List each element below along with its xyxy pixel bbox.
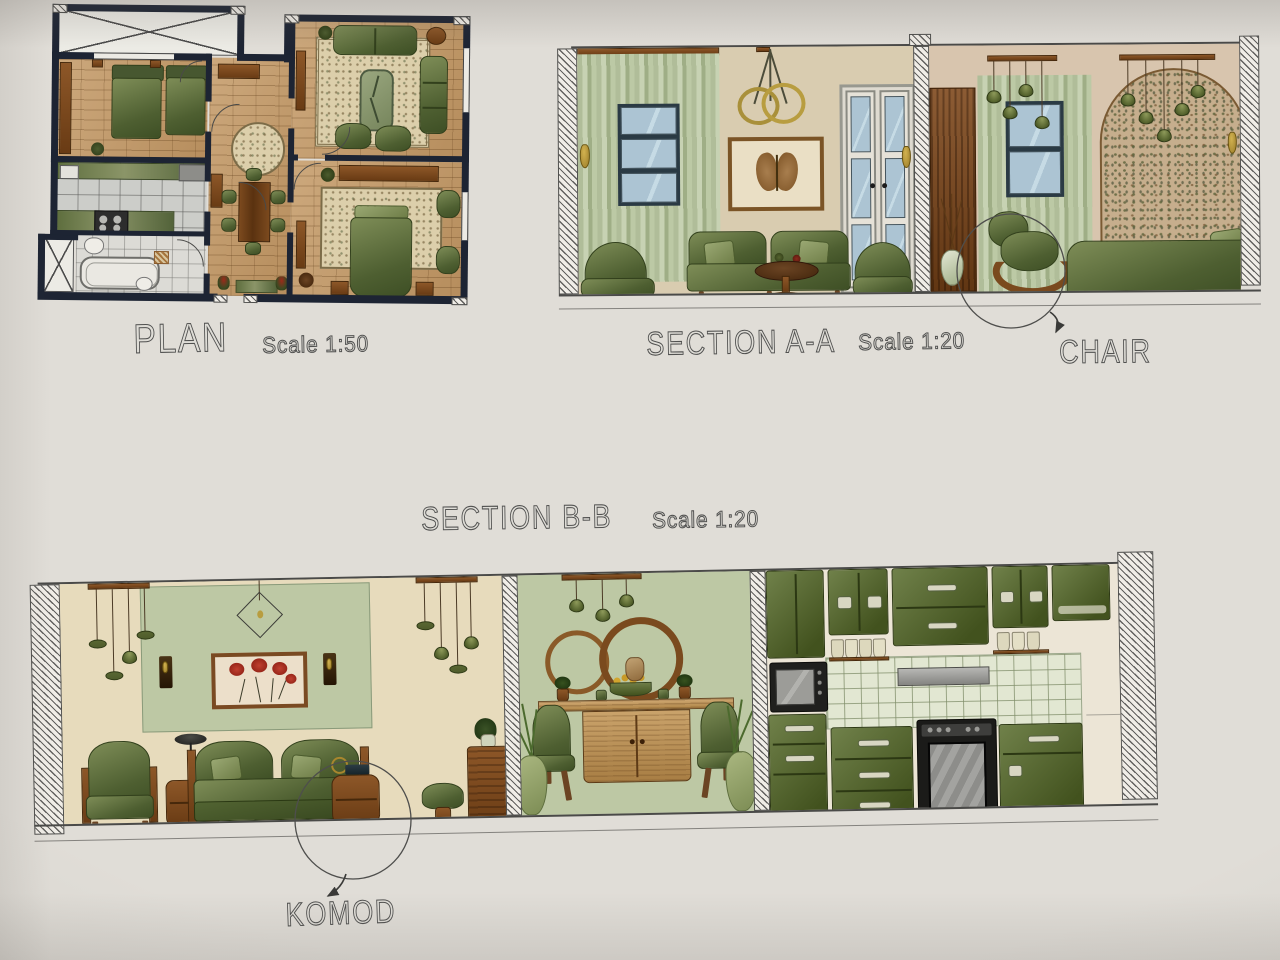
pendant-bar [1119, 54, 1215, 61]
lower-cabinet [768, 714, 828, 811]
plan-window [461, 192, 469, 240]
plan-towel [154, 251, 169, 264]
plan-wall [287, 232, 294, 296]
plan-side-table [296, 220, 307, 268]
pendant-light [1175, 103, 1190, 116]
wall-sconce [1228, 132, 1237, 154]
lower-cabinet [831, 726, 915, 811]
pendant-light [1018, 84, 1033, 97]
plan-wall [288, 154, 298, 160]
plan-sideboard [339, 165, 439, 182]
pendant-light [595, 609, 610, 622]
plan-wall [203, 274, 209, 300]
plan-flower-pot [218, 276, 230, 290]
floor-plan-drawing [31, 4, 470, 307]
plan-wall-cap [451, 297, 467, 305]
plan-window [462, 48, 470, 112]
upper-cabinet [891, 566, 988, 646]
plan-hall-cabinet [210, 174, 222, 208]
armchair [81, 740, 163, 824]
upper-cabinet [991, 565, 1048, 628]
pendant-light [619, 594, 634, 607]
komod-callout-arrow [328, 874, 346, 896]
section-bb-wall-right [1117, 551, 1158, 800]
plan-console [218, 64, 260, 79]
plan-window [94, 52, 174, 60]
plan-dining-chair [245, 242, 261, 255]
vase-with-branches [932, 192, 967, 290]
plan-wall-cap [453, 16, 470, 25]
pendant-light [1139, 111, 1154, 124]
flower-artwork [211, 652, 308, 710]
range-hood [897, 666, 989, 686]
pendant-light [464, 636, 479, 649]
plan-wall-cap [243, 295, 257, 303]
rocking-chair [986, 211, 1079, 292]
plan-wall-cap [284, 14, 299, 23]
section-aa-livingroom [577, 46, 915, 294]
plan-wall [237, 54, 291, 62]
wall-sconce [902, 146, 911, 168]
plan-dining-chair [246, 168, 262, 181]
plan-plant [321, 168, 335, 182]
plant-pot [675, 674, 693, 700]
plan-balcony [58, 8, 240, 56]
wall-sconce [580, 144, 590, 168]
plan-scale: Scale 1:50 [262, 330, 369, 359]
armchair [580, 242, 658, 295]
section-aa-drawing [557, 32, 1261, 313]
section-bb-drawing [29, 549, 1158, 857]
bedside-chest [331, 750, 383, 824]
coffee-table [755, 261, 817, 295]
plan-doormat [236, 280, 278, 293]
upper-cabinet [827, 568, 888, 635]
section-aa-wall-left [557, 48, 579, 294]
door-handle [870, 183, 875, 188]
butterfly-artwork [728, 137, 825, 212]
section-bb-scale: Scale 1:20 [652, 506, 759, 534]
plan-plant [91, 142, 104, 155]
tall-cabinet [466, 718, 506, 825]
diamond-pendant-light [230, 580, 291, 645]
plan-side-table [426, 27, 446, 45]
plan-console [295, 50, 306, 110]
plan-wall [288, 128, 295, 202]
plan-wall [205, 132, 212, 182]
upper-cabinet [1051, 564, 1110, 621]
upper-cabinet [765, 570, 825, 659]
plan-dresser [59, 62, 72, 154]
armchair [852, 242, 914, 294]
plan-pouf [299, 273, 314, 288]
section-aa-wall-right [1239, 36, 1261, 286]
plan-dining-chair [270, 218, 285, 232]
komod-callout-label: KOMOD [285, 892, 397, 934]
plan-wall [289, 14, 296, 98]
plan-bed-1 [111, 65, 162, 140]
chair-callout-arrow [1050, 312, 1058, 332]
floor-plant [518, 703, 549, 815]
pendant-light [449, 664, 467, 673]
plan-wall [37, 292, 217, 302]
window [618, 104, 681, 206]
pendant-light [986, 90, 1001, 103]
section-aa-scale: Scale 1:20 [858, 327, 965, 356]
plan-title: PLAN [133, 314, 228, 363]
section-aa-bedroom [929, 44, 1241, 292]
pendant-light [105, 671, 123, 680]
plan-armchair [436, 246, 460, 274]
open-shelf-jars [829, 636, 889, 661]
floor-plant [722, 699, 754, 812]
plan-wall-cap [213, 295, 227, 303]
pendant-light [122, 651, 137, 664]
plan-coffee-table [359, 69, 394, 131]
section-bb-title: SECTION B-B [421, 497, 612, 538]
door-handle [882, 183, 887, 188]
presentation-board: { "board": { "drawings": [ {"id": "plan"… [0, 0, 1280, 960]
jug [625, 657, 644, 681]
section-bb-wall-left [30, 584, 65, 835]
plan-plant [318, 26, 332, 40]
plan-wall [243, 294, 467, 304]
microwave [769, 662, 828, 713]
pendant-light [416, 621, 434, 630]
wall-niche-lamp [159, 656, 173, 688]
section-aa-title: SECTION A-A [646, 322, 836, 363]
table-cabinet [582, 709, 691, 783]
plan-wall-cap [52, 4, 67, 13]
plan-loveseat [333, 25, 417, 56]
open-shelf-jars [993, 629, 1049, 654]
section-aa-wall-cap [909, 34, 931, 46]
plan-wall [204, 212, 210, 246]
plan-fridge [179, 164, 207, 181]
plan-bed-large [350, 205, 413, 298]
plan-nightlamp [150, 60, 161, 68]
plan-dining-chair [221, 218, 236, 232]
plan-armchair [375, 125, 411, 151]
pendant-light [1157, 129, 1172, 142]
plan-nightstand [331, 281, 349, 295]
pendant-light [569, 599, 584, 612]
backsplash-tiles [825, 653, 1082, 730]
plan-sofa [419, 56, 448, 134]
plan-dining-chair [270, 190, 285, 204]
plan-nightstand [416, 282, 434, 296]
plan-sink [60, 165, 79, 179]
bed [1066, 236, 1240, 292]
plan-nightlamp [92, 59, 103, 67]
pendant-light [1035, 116, 1050, 129]
pendant-light [1120, 93, 1135, 106]
book-stack [345, 764, 369, 774]
section-bb-kitchen [765, 564, 1122, 811]
plan-toilet [84, 237, 104, 254]
section-aa-dividing-wall [913, 46, 931, 292]
lower-cabinet [998, 723, 1084, 811]
section-bb-diningroom [518, 571, 755, 815]
section-bb-livingroom [60, 576, 507, 824]
plan-armchair [436, 190, 460, 218]
plan-wall [38, 234, 46, 296]
oven [916, 718, 998, 810]
plan-wall-cap [230, 6, 245, 15]
plant-pot [553, 676, 571, 702]
pendant-light [89, 639, 107, 648]
chair-callout-label: CHAIR [1059, 332, 1152, 371]
pendant-light [1003, 106, 1018, 119]
plan-dining-chair [221, 190, 236, 204]
plan-wall [206, 54, 213, 102]
wall-niche-lamp [323, 653, 337, 685]
pendant-light [1190, 85, 1205, 98]
chandelier-ring [761, 83, 805, 124]
pendant-light [434, 647, 449, 660]
plan-washbasin [136, 277, 153, 291]
plan-shaft [44, 236, 75, 292]
pendant-bar [987, 55, 1057, 61]
